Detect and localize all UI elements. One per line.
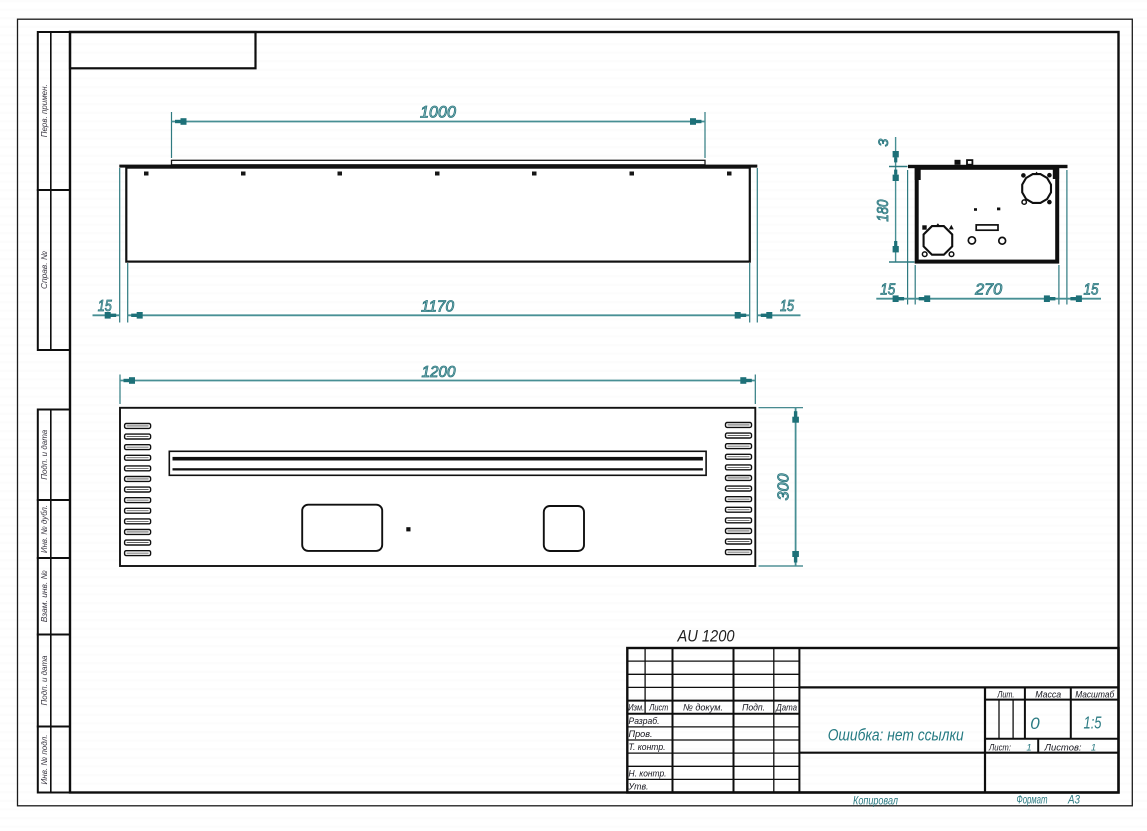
svg-text:Масштаб: Масштаб <box>1075 690 1115 701</box>
svg-text:Изм.: Изм. <box>628 702 644 713</box>
svg-text:Подп.: Подп. <box>742 702 765 713</box>
svg-text:Ошибка: нет ссылки: Ошибка: нет ссылки <box>828 726 964 745</box>
svg-text:Инв. № дубл.: Инв. № дубл. <box>39 505 49 553</box>
svg-text:Лист:: Лист: <box>988 742 1011 753</box>
svg-text:15: 15 <box>780 298 794 315</box>
svg-text:270: 270 <box>974 282 1002 299</box>
svg-text:180: 180 <box>875 200 892 222</box>
svg-text:1170: 1170 <box>421 299 454 316</box>
svg-text:1000: 1000 <box>420 103 457 122</box>
svg-text:Формат: Формат <box>1017 795 1048 807</box>
svg-text:Т. контр.: Т. контр. <box>629 742 666 753</box>
svg-text:Взам. инв. №: Взам. инв. № <box>39 570 49 622</box>
svg-text:№ докум.: № докум. <box>683 702 723 713</box>
svg-text:1: 1 <box>1091 742 1096 753</box>
svg-text:300: 300 <box>776 473 793 500</box>
svg-text:Масса: Масса <box>1035 690 1061 701</box>
svg-text:1200: 1200 <box>422 364 456 381</box>
svg-text:15: 15 <box>1084 282 1099 299</box>
svg-text:Н. контр.: Н. контр. <box>629 768 667 779</box>
svg-text:3: 3 <box>875 139 891 147</box>
svg-text:Подп. и дата: Подп. и дата <box>39 430 49 480</box>
svg-text:Копировал: Копировал <box>853 796 898 808</box>
svg-text:Дата: Дата <box>775 702 797 713</box>
svg-text:Пров.: Пров. <box>629 729 653 740</box>
svg-text:AU 1200: AU 1200 <box>677 628 736 646</box>
svg-text:Инв. № подл.: Инв. № подл. <box>39 735 49 785</box>
svg-text:Перв. примен.: Перв. примен. <box>39 84 49 137</box>
svg-text:0: 0 <box>1030 714 1040 733</box>
svg-text:Лит.: Лит. <box>997 690 1015 701</box>
svg-text:1: 1 <box>1026 742 1031 753</box>
svg-text:1:5: 1:5 <box>1084 713 1102 733</box>
svg-text:15: 15 <box>880 282 895 299</box>
svg-text:A3: A3 <box>1067 795 1080 807</box>
svg-text:Подп. и дата: Подп. и дата <box>39 655 49 705</box>
svg-text:Утв.: Утв. <box>628 782 649 793</box>
svg-text:Листов:: Листов: <box>1044 742 1082 753</box>
svg-text:Справ. №: Справ. № <box>39 251 49 289</box>
svg-text:Лист: Лист <box>649 702 669 713</box>
svg-text:Разраб.: Разраб. <box>629 716 660 727</box>
svg-text:15: 15 <box>98 298 112 315</box>
